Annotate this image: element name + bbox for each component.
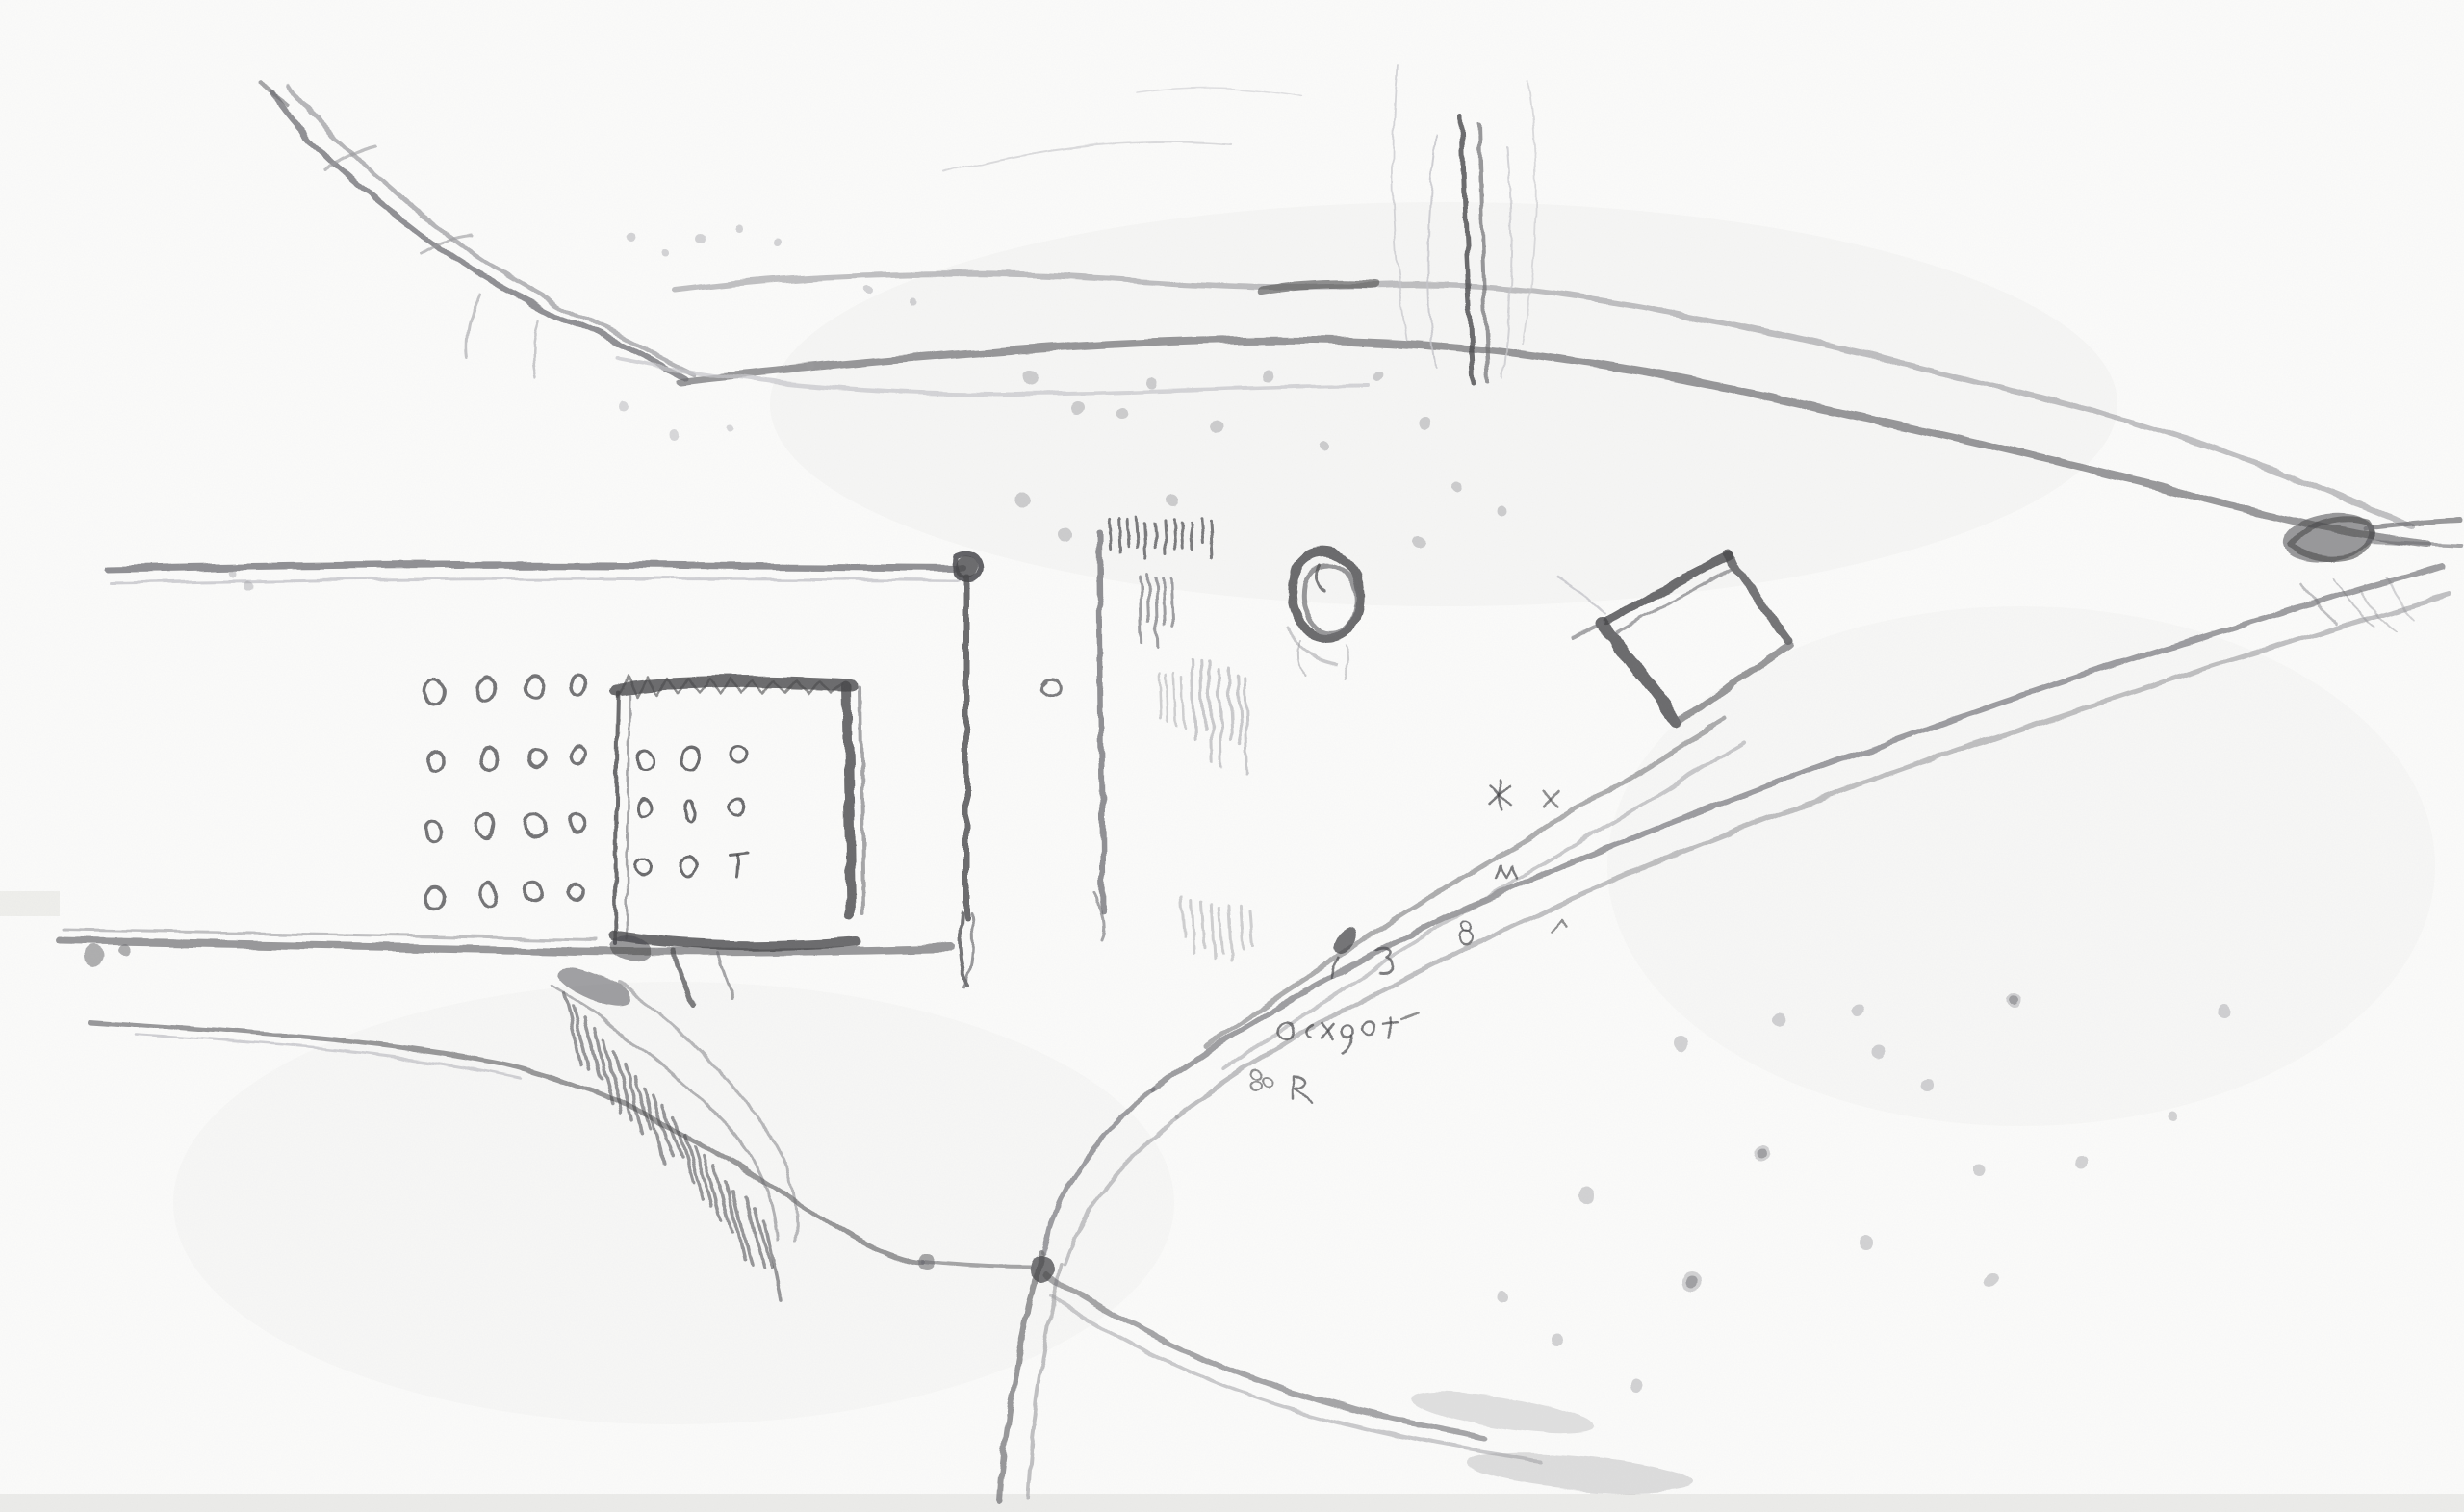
pencil-site-plan-sketch [0, 0, 2464, 1512]
paper-grain-texture [0, 0, 2464, 1512]
sketch-svg [0, 0, 2464, 1512]
